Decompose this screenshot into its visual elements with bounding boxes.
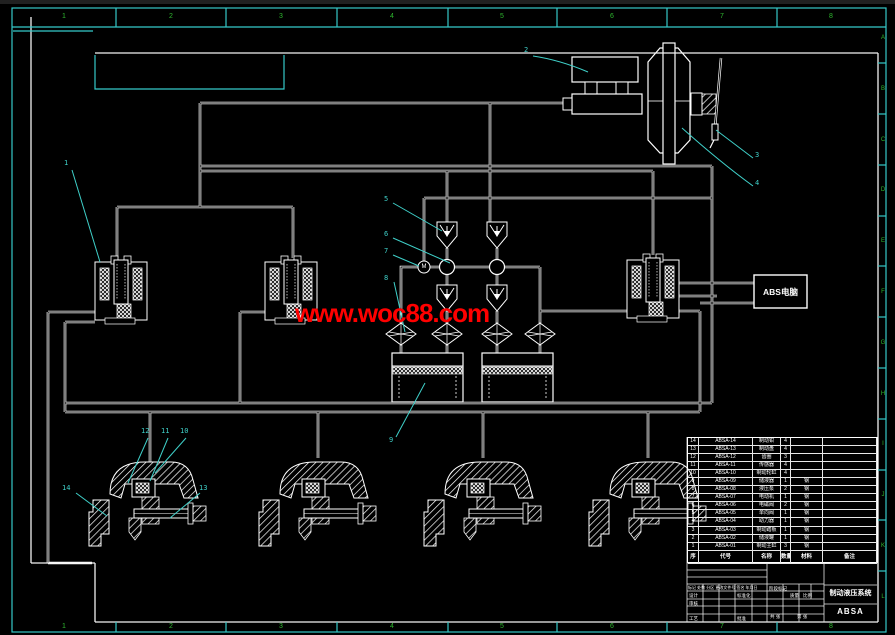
wheel-assembly-2: [259, 462, 376, 546]
bom-cell: 10: [688, 470, 699, 478]
wheel-cylinder-rear: [627, 254, 679, 322]
bom-cell: [791, 462, 823, 470]
titleblock-weight-label: 质量: [790, 593, 799, 598]
motor-symbol-label: M: [419, 263, 429, 271]
bom-cell: 4: [781, 462, 791, 470]
bom-cell: [791, 470, 823, 478]
bom-cell: [823, 446, 877, 454]
bom-cell: 14: [688, 438, 699, 446]
bom-cell: 3: [781, 543, 791, 551]
zone-col-label: 8: [824, 13, 838, 20]
bom-cell: 11: [688, 462, 699, 470]
bom-cell: 电磁阀: [753, 502, 781, 510]
callout-label-13: 13: [199, 485, 207, 492]
zone-col-label: 2: [164, 13, 178, 20]
bom-header-cell: 序: [688, 551, 699, 564]
accumulator-left: [392, 353, 463, 402]
bom-cell: 钢: [791, 527, 823, 535]
bom-cell: 4: [781, 446, 791, 454]
zone-row-label: H: [879, 391, 887, 397]
callout-label-14: 14: [62, 485, 70, 492]
zone-row-label: I: [879, 441, 887, 447]
bom-cell: 传感器: [753, 462, 781, 470]
bom-cell: 单向阀: [753, 510, 781, 518]
bom-cell: 3: [781, 454, 791, 462]
bom-cell: [823, 527, 877, 535]
titleblock-sheet-label: 第 张: [797, 614, 807, 619]
bom-cell: ABSA-10: [699, 470, 753, 478]
wheel-assembly-3: [424, 462, 541, 546]
bom-cell: 3: [688, 527, 699, 535]
bom-cell: ABSA-09: [699, 478, 753, 486]
drawing-number: ABSA: [824, 607, 877, 616]
bom-cell: 电动机: [753, 494, 781, 502]
bom-cell: 钢: [791, 486, 823, 494]
callout-label-11: 11: [161, 428, 169, 435]
zone-col-label: 4: [385, 623, 399, 630]
zone-row-label: F: [879, 289, 887, 295]
bom-cell: ABSA-04: [699, 518, 753, 526]
bom-cell: 1: [781, 478, 791, 486]
bom-cell: 钢: [791, 478, 823, 486]
zone-row-label: K: [879, 543, 887, 549]
bom-cell: ABSA-01: [699, 543, 753, 551]
callout-label-10: 10: [180, 428, 188, 435]
bom-cell: ABSA-13: [699, 446, 753, 454]
bom-cell: 液压泵: [753, 486, 781, 494]
watermark-text: www.woc88.com: [295, 298, 489, 329]
zone-row-label: C: [879, 137, 887, 143]
bom-cell: 钢: [791, 502, 823, 510]
zone-col-label: 6: [605, 623, 619, 630]
bom-cell: 8: [688, 486, 699, 494]
bom-cell: [823, 494, 877, 502]
callout-label-1: 1: [64, 160, 68, 167]
bom-cell: ABSA-02: [699, 535, 753, 543]
bom-cell: 钢: [791, 543, 823, 551]
bom-header-cell: 名称: [753, 551, 781, 564]
bom-cell: 钢: [791, 494, 823, 502]
bom-cell: [823, 543, 877, 551]
bom-cell: [823, 462, 877, 470]
zone-col-label: 5: [495, 623, 509, 630]
bom-cell: 助力器: [753, 518, 781, 526]
abs-ecu-label: ABS电脑: [754, 275, 807, 308]
callout-label-2: 2: [524, 47, 528, 54]
bom-header-cell: 备注: [823, 551, 877, 564]
zone-col-label: 7: [715, 623, 729, 630]
cad-drawing-canvas: 12345678 12345678 ABCDEFGHIJKL 123456789…: [0, 0, 895, 635]
zone-col-label: 7: [715, 13, 729, 20]
bom-header-cell: 材料: [791, 551, 823, 564]
zone-col-label: 6: [605, 13, 619, 20]
bom-cell: [791, 446, 823, 454]
bom-cell: 1: [781, 527, 791, 535]
bom-cell: ABSA-12: [699, 454, 753, 462]
bom-cell: 储液罐: [753, 535, 781, 543]
bom-cell: 7: [688, 494, 699, 502]
bom-header-cell: 数量: [781, 551, 791, 564]
bom-cell: 1: [781, 510, 791, 518]
bom-cell: ABSA-06: [699, 502, 753, 510]
drawing-title: 制动液压系统: [824, 588, 877, 598]
titleblock-sheets-label: 共 张: [770, 614, 780, 619]
titleblock-standard-label: 标准化: [737, 593, 751, 598]
titleblock-stage-label: 阶段标记: [769, 586, 787, 591]
bom-cell: [823, 502, 877, 510]
bom-header-cell: 代号: [699, 551, 753, 564]
bom-cell: ABSA-08: [699, 486, 753, 494]
bom-cell: ABSA-11: [699, 462, 753, 470]
pump-circle: [490, 260, 505, 275]
zone-col-label: 4: [385, 13, 399, 20]
titleblock-revision-row: 标记 处数 分区 更改文件号 签名 年月日: [688, 585, 823, 590]
bom-cell: [823, 535, 877, 543]
bom-cell: 1: [781, 518, 791, 526]
zone-row-label: A: [879, 35, 887, 41]
bom-cell: 5: [688, 510, 699, 518]
zone-row-label: D: [879, 187, 887, 193]
zone-row-label: G: [879, 340, 887, 346]
bom-table: 14ABSA-14制动钳413ABSA-13制动盘412ABSA-12齿圈311…: [687, 437, 878, 563]
titleblock-design-label: 设计: [689, 593, 698, 598]
bom-cell: 2: [781, 502, 791, 510]
bom-cell: [791, 438, 823, 446]
bom-cell: 2: [688, 535, 699, 543]
bom-cell: 钢: [791, 518, 823, 526]
bom-cell: 4: [781, 470, 791, 478]
callout-label-5: 5: [384, 196, 388, 203]
bom-cell: 9: [688, 478, 699, 486]
bom-cell: 齿圈: [753, 454, 781, 462]
bom-cell: [823, 454, 877, 462]
wheel-cylinder-front-left: [95, 256, 147, 324]
bom-cell: 制动轮缸: [753, 470, 781, 478]
bom-cell: [823, 470, 877, 478]
callout-label-8: 8: [384, 275, 388, 282]
zone-col-label: 8: [824, 623, 838, 630]
bom-cell: 钢: [791, 510, 823, 518]
bom-cell: 1: [688, 543, 699, 551]
bom-cell: [823, 510, 877, 518]
callout-label-6: 6: [384, 231, 388, 238]
bom-cell: 4: [781, 438, 791, 446]
bom-cell: 制动钳: [753, 438, 781, 446]
bom-cell: ABSA-14: [699, 438, 753, 446]
bom-cell: ABSA-05: [699, 510, 753, 518]
wheel-assembly-1: [89, 462, 206, 546]
zone-row-label: B: [879, 86, 887, 92]
bom-cell: 1: [781, 494, 791, 502]
zone-col-label: 5: [495, 13, 509, 20]
bom-cell: 2: [781, 486, 791, 494]
callout-label-7: 7: [384, 248, 388, 255]
titleblock-process-label: 工艺: [689, 616, 698, 621]
bom-cell: 制动主缸: [753, 543, 781, 551]
callout-label-9: 9: [389, 437, 393, 444]
zone-col-label: 3: [274, 13, 288, 20]
zone-row-label: J: [879, 492, 887, 498]
bom-cell: 1: [781, 535, 791, 543]
bom-cell: 钢: [791, 535, 823, 543]
bom-cell: [823, 486, 877, 494]
callout-label-4: 4: [755, 180, 759, 187]
titleblock-approve-label: 批准: [737, 616, 746, 621]
bom-cell: 储液器: [753, 478, 781, 486]
accumulator-right: [482, 353, 553, 402]
zone-col-label: 2: [164, 623, 178, 630]
bom-cell: 13: [688, 446, 699, 454]
zone-col-label: 1: [57, 623, 71, 630]
bom-cell: 制动踏板: [753, 527, 781, 535]
bom-cell: 12: [688, 454, 699, 462]
bom-cell: ABSA-07: [699, 494, 753, 502]
bom-cell: [791, 454, 823, 462]
callout-label-12: 12: [141, 428, 149, 435]
bom-cell: [823, 518, 877, 526]
titleblock-scale-label: 比例: [803, 593, 812, 598]
titleblock-audit-label: 审核: [689, 601, 698, 606]
bom-cell: [823, 478, 877, 486]
zone-row-label: E: [879, 238, 887, 244]
bom-cell: 制动盘: [753, 446, 781, 454]
zone-row-label: L: [879, 594, 887, 600]
zone-col-label: 3: [274, 623, 288, 630]
bom-cell: 6: [688, 502, 699, 510]
bom-cell: 4: [688, 518, 699, 526]
zone-col-label: 1: [57, 13, 71, 20]
bom-cell: ABSA-03: [699, 527, 753, 535]
callout-label-3: 3: [755, 152, 759, 159]
master-cylinder-assembly: [563, 43, 721, 164]
bom-cell: [823, 438, 877, 446]
